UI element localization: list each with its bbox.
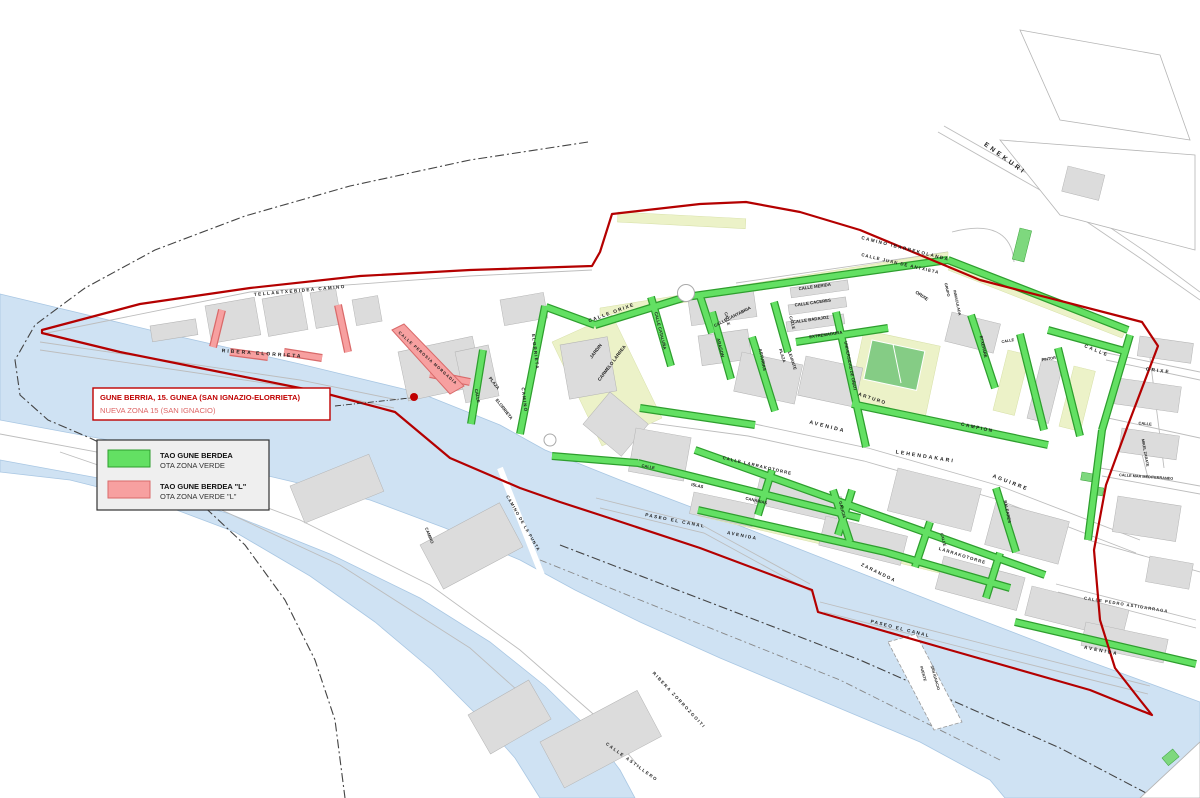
- legend-green-label-eu: TAO GUNE BERDEA: [160, 451, 233, 460]
- legend-red-label-eu: TAO GUNE BERDEA "L": [160, 482, 247, 491]
- building: [1114, 378, 1181, 413]
- street-label: RIBERA ZORROZGOITI: [652, 671, 707, 730]
- street-label: ELORRIETA: [495, 398, 515, 421]
- road: [952, 228, 1014, 262]
- legend-green-label-es: OTA ZONA VERDE: [160, 461, 225, 470]
- map-legend: TAO GUNE BERDEA OTA ZONA VERDE TAO GUNE …: [97, 440, 269, 510]
- callout-subtitle: NUEVA ZONA 15 (SAN IGNACIO): [100, 406, 216, 415]
- map-document: ENEKURITELLAETXEBIDEA CAMINORIBERA ELORR…: [0, 0, 1200, 798]
- building: [1112, 496, 1181, 542]
- building: [1145, 556, 1193, 589]
- building: [1119, 428, 1180, 460]
- street-label: AVENIDA: [809, 420, 846, 435]
- street-label: CALLE MAR MEDITERRANEO: [1119, 473, 1173, 481]
- street-label: CALLE: [1138, 420, 1152, 426]
- street-label: ORIXE: [1145, 367, 1170, 376]
- callout-target-dot: [410, 393, 418, 401]
- hillside-parcel: [1020, 30, 1190, 140]
- roundabout: [544, 434, 556, 446]
- park-patch: [617, 212, 745, 229]
- legend-red-swatch: [108, 481, 150, 498]
- building: [150, 319, 198, 342]
- building: [262, 292, 308, 336]
- roundabout: [678, 285, 695, 302]
- street-label: INMACULADA: [952, 290, 961, 316]
- street-label: CALLE CATALUÑA: [653, 311, 667, 350]
- legend-green-swatch: [108, 450, 150, 467]
- green-patch: [1012, 228, 1031, 262]
- street-label: ORIXE: [914, 290, 929, 302]
- legend-red-label-es: OTA ZONA VERDE "L": [160, 492, 237, 501]
- street-label: GRUPO: [944, 283, 951, 297]
- callout-title: GUNE BERRIA, 15. GUNEA (SAN IGNAZIO-ELOR…: [100, 393, 300, 402]
- street-label: LEHENDAKARI: [895, 449, 955, 464]
- building: [352, 295, 382, 325]
- building: [1137, 336, 1193, 363]
- street-label: CALLE: [1001, 338, 1015, 344]
- map-canvas: ENEKURITELLAETXEBIDEA CAMINORIBERA ELORR…: [0, 0, 1200, 798]
